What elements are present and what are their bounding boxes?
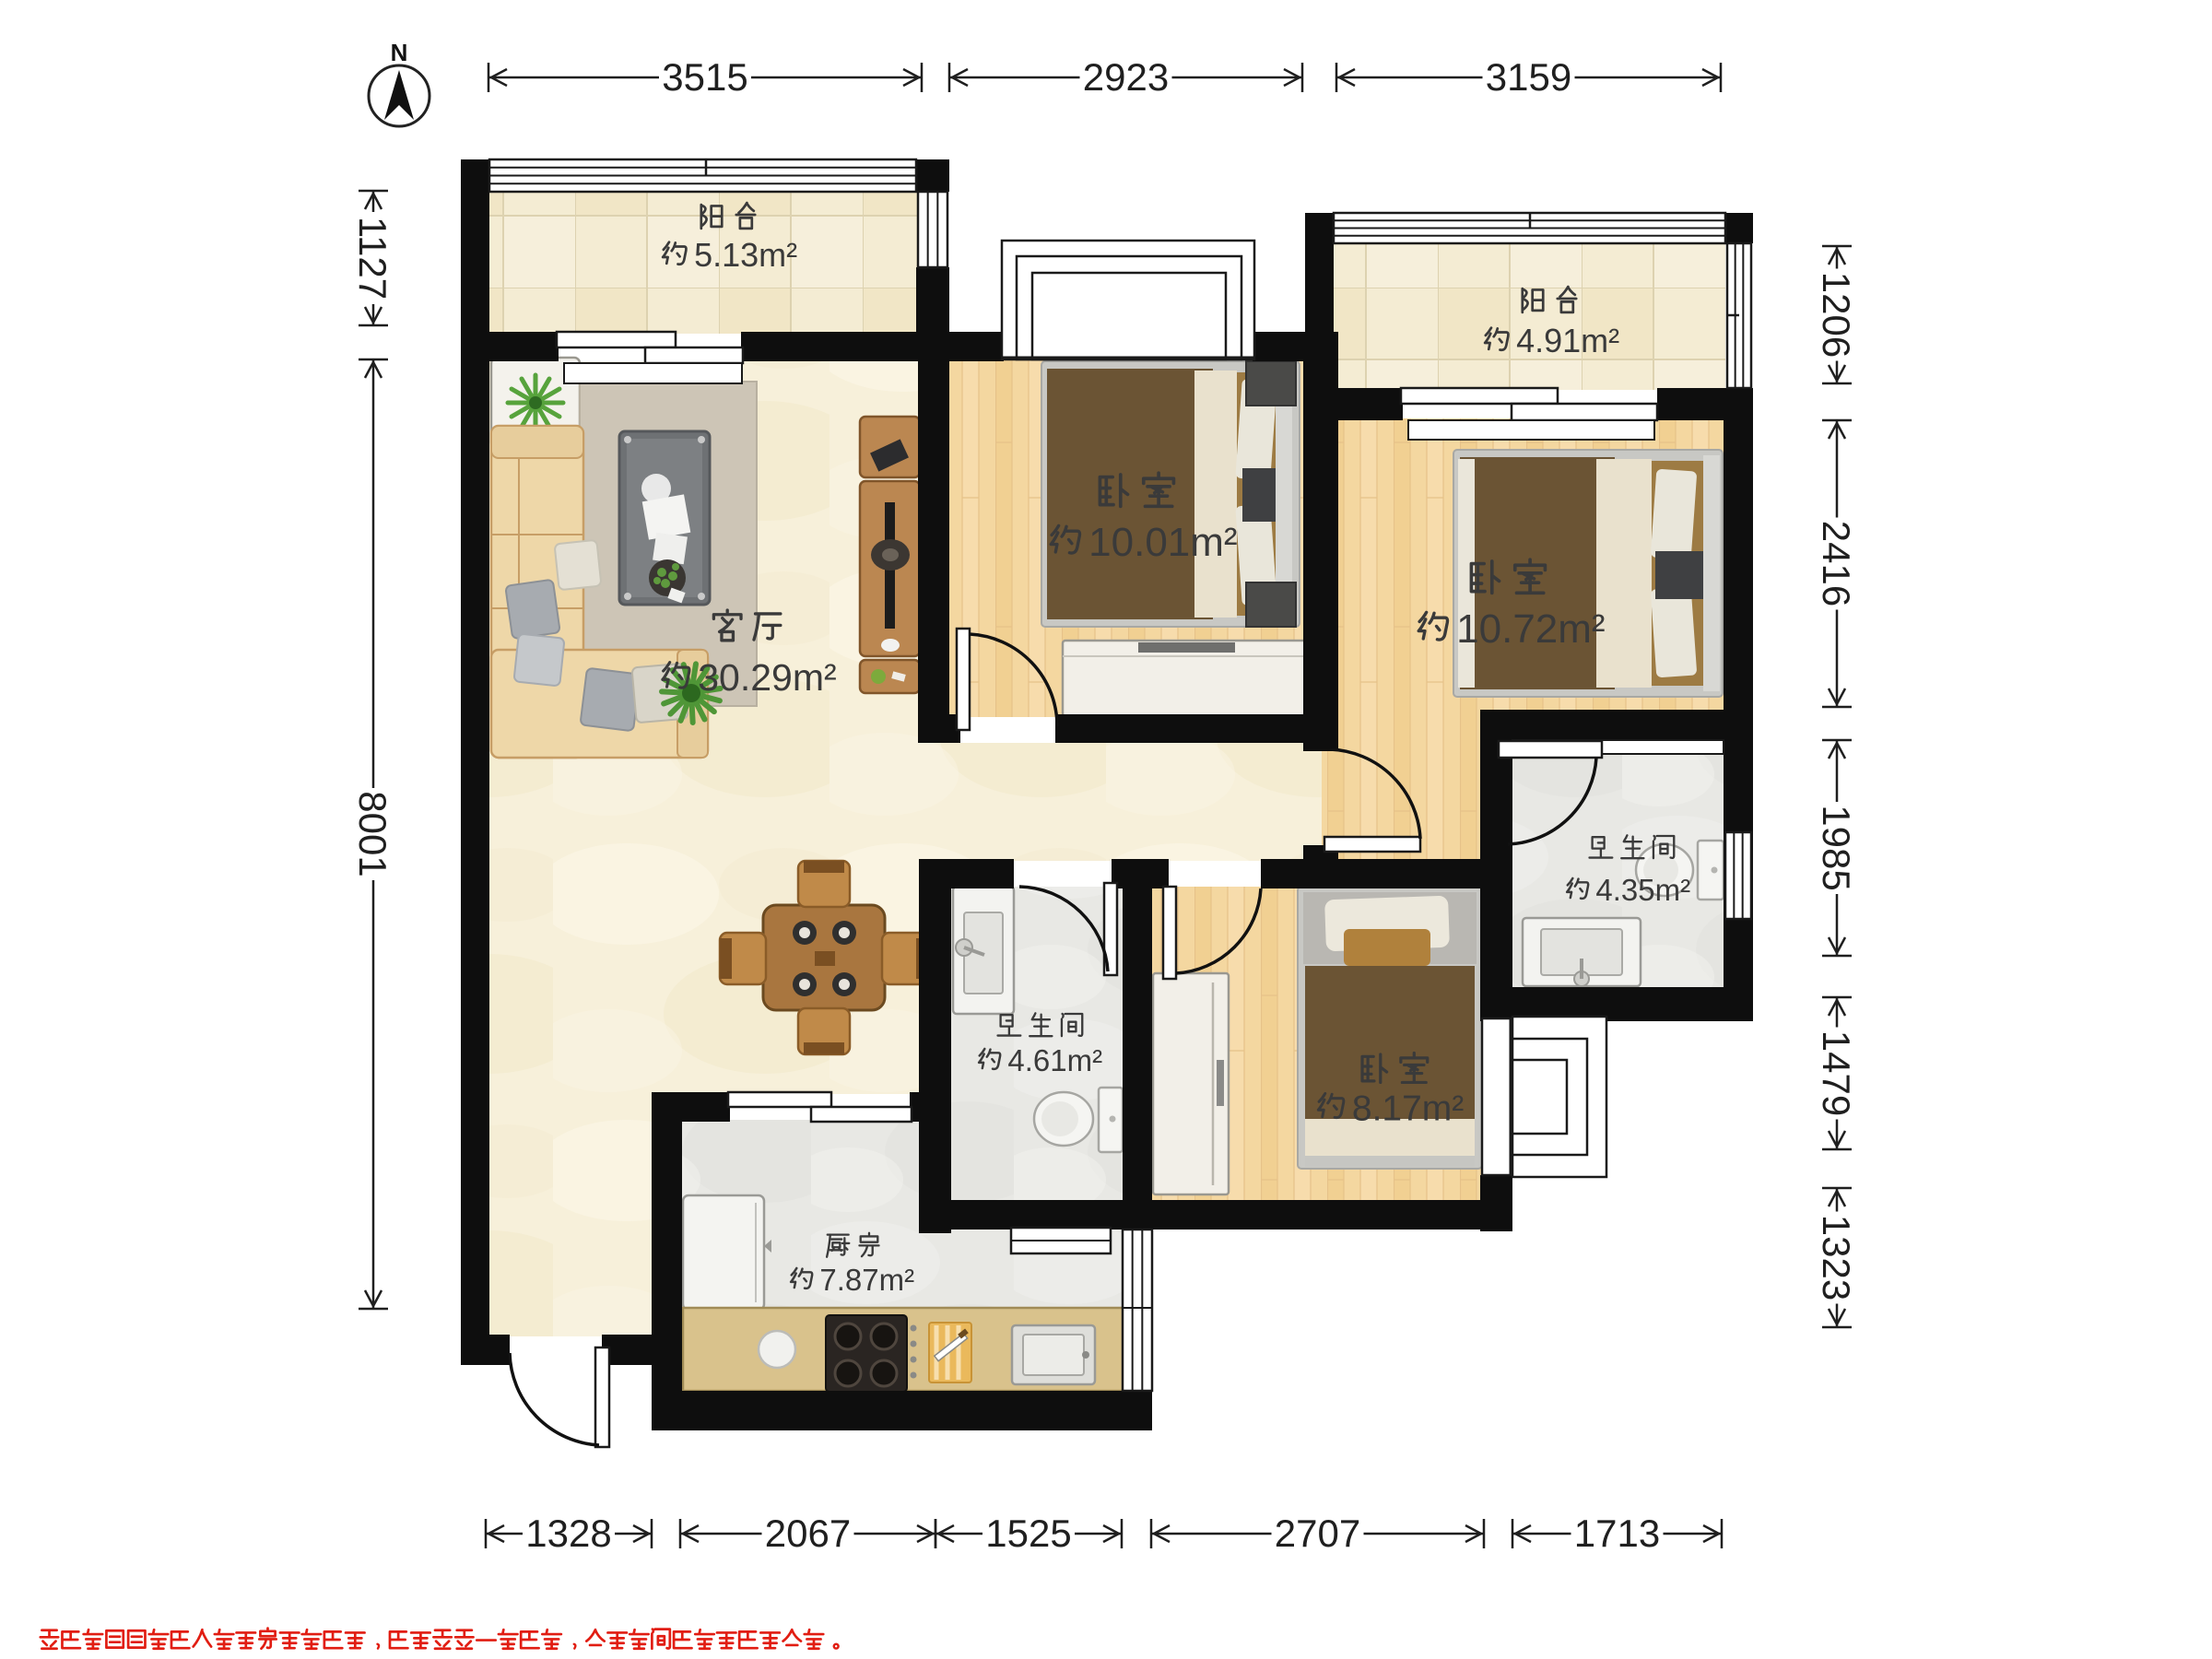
svg-text:4.91m²: 4.91m² [1516, 322, 1619, 359]
svg-text:2923: 2923 [1083, 55, 1169, 99]
svg-text:1985: 1985 [1815, 805, 1858, 890]
svg-text:1127: 1127 [351, 217, 394, 300]
svg-text:4.61m²: 4.61m² [1007, 1043, 1102, 1077]
svg-text:30.29m²: 30.29m² [698, 656, 836, 699]
svg-text:1713: 1713 [1574, 1512, 1660, 1555]
svg-text:10.01m²: 10.01m² [1088, 520, 1237, 565]
svg-text:8001: 8001 [351, 791, 394, 877]
svg-text:10.72m²: 10.72m² [1456, 606, 1605, 652]
svg-text:4.35m²: 4.35m² [1595, 873, 1690, 907]
svg-text:2707: 2707 [1275, 1512, 1360, 1555]
svg-text:2067: 2067 [765, 1512, 851, 1555]
svg-text:1479: 1479 [1815, 1030, 1858, 1116]
svg-text:1328: 1328 [525, 1512, 611, 1555]
svg-text:1323: 1323 [1815, 1215, 1858, 1300]
svg-text:1525: 1525 [985, 1512, 1071, 1555]
svg-text:5.13m²: 5.13m² [694, 236, 797, 274]
svg-text:1206: 1206 [1815, 272, 1858, 358]
svg-text:3159: 3159 [1486, 55, 1571, 99]
svg-text:8.17m²: 8.17m² [1352, 1088, 1464, 1128]
svg-text:7.87m²: 7.87m² [819, 1263, 914, 1297]
svg-text:3515: 3515 [662, 55, 747, 99]
svg-text:N: N [391, 39, 408, 66]
svg-text:2416: 2416 [1815, 521, 1858, 606]
